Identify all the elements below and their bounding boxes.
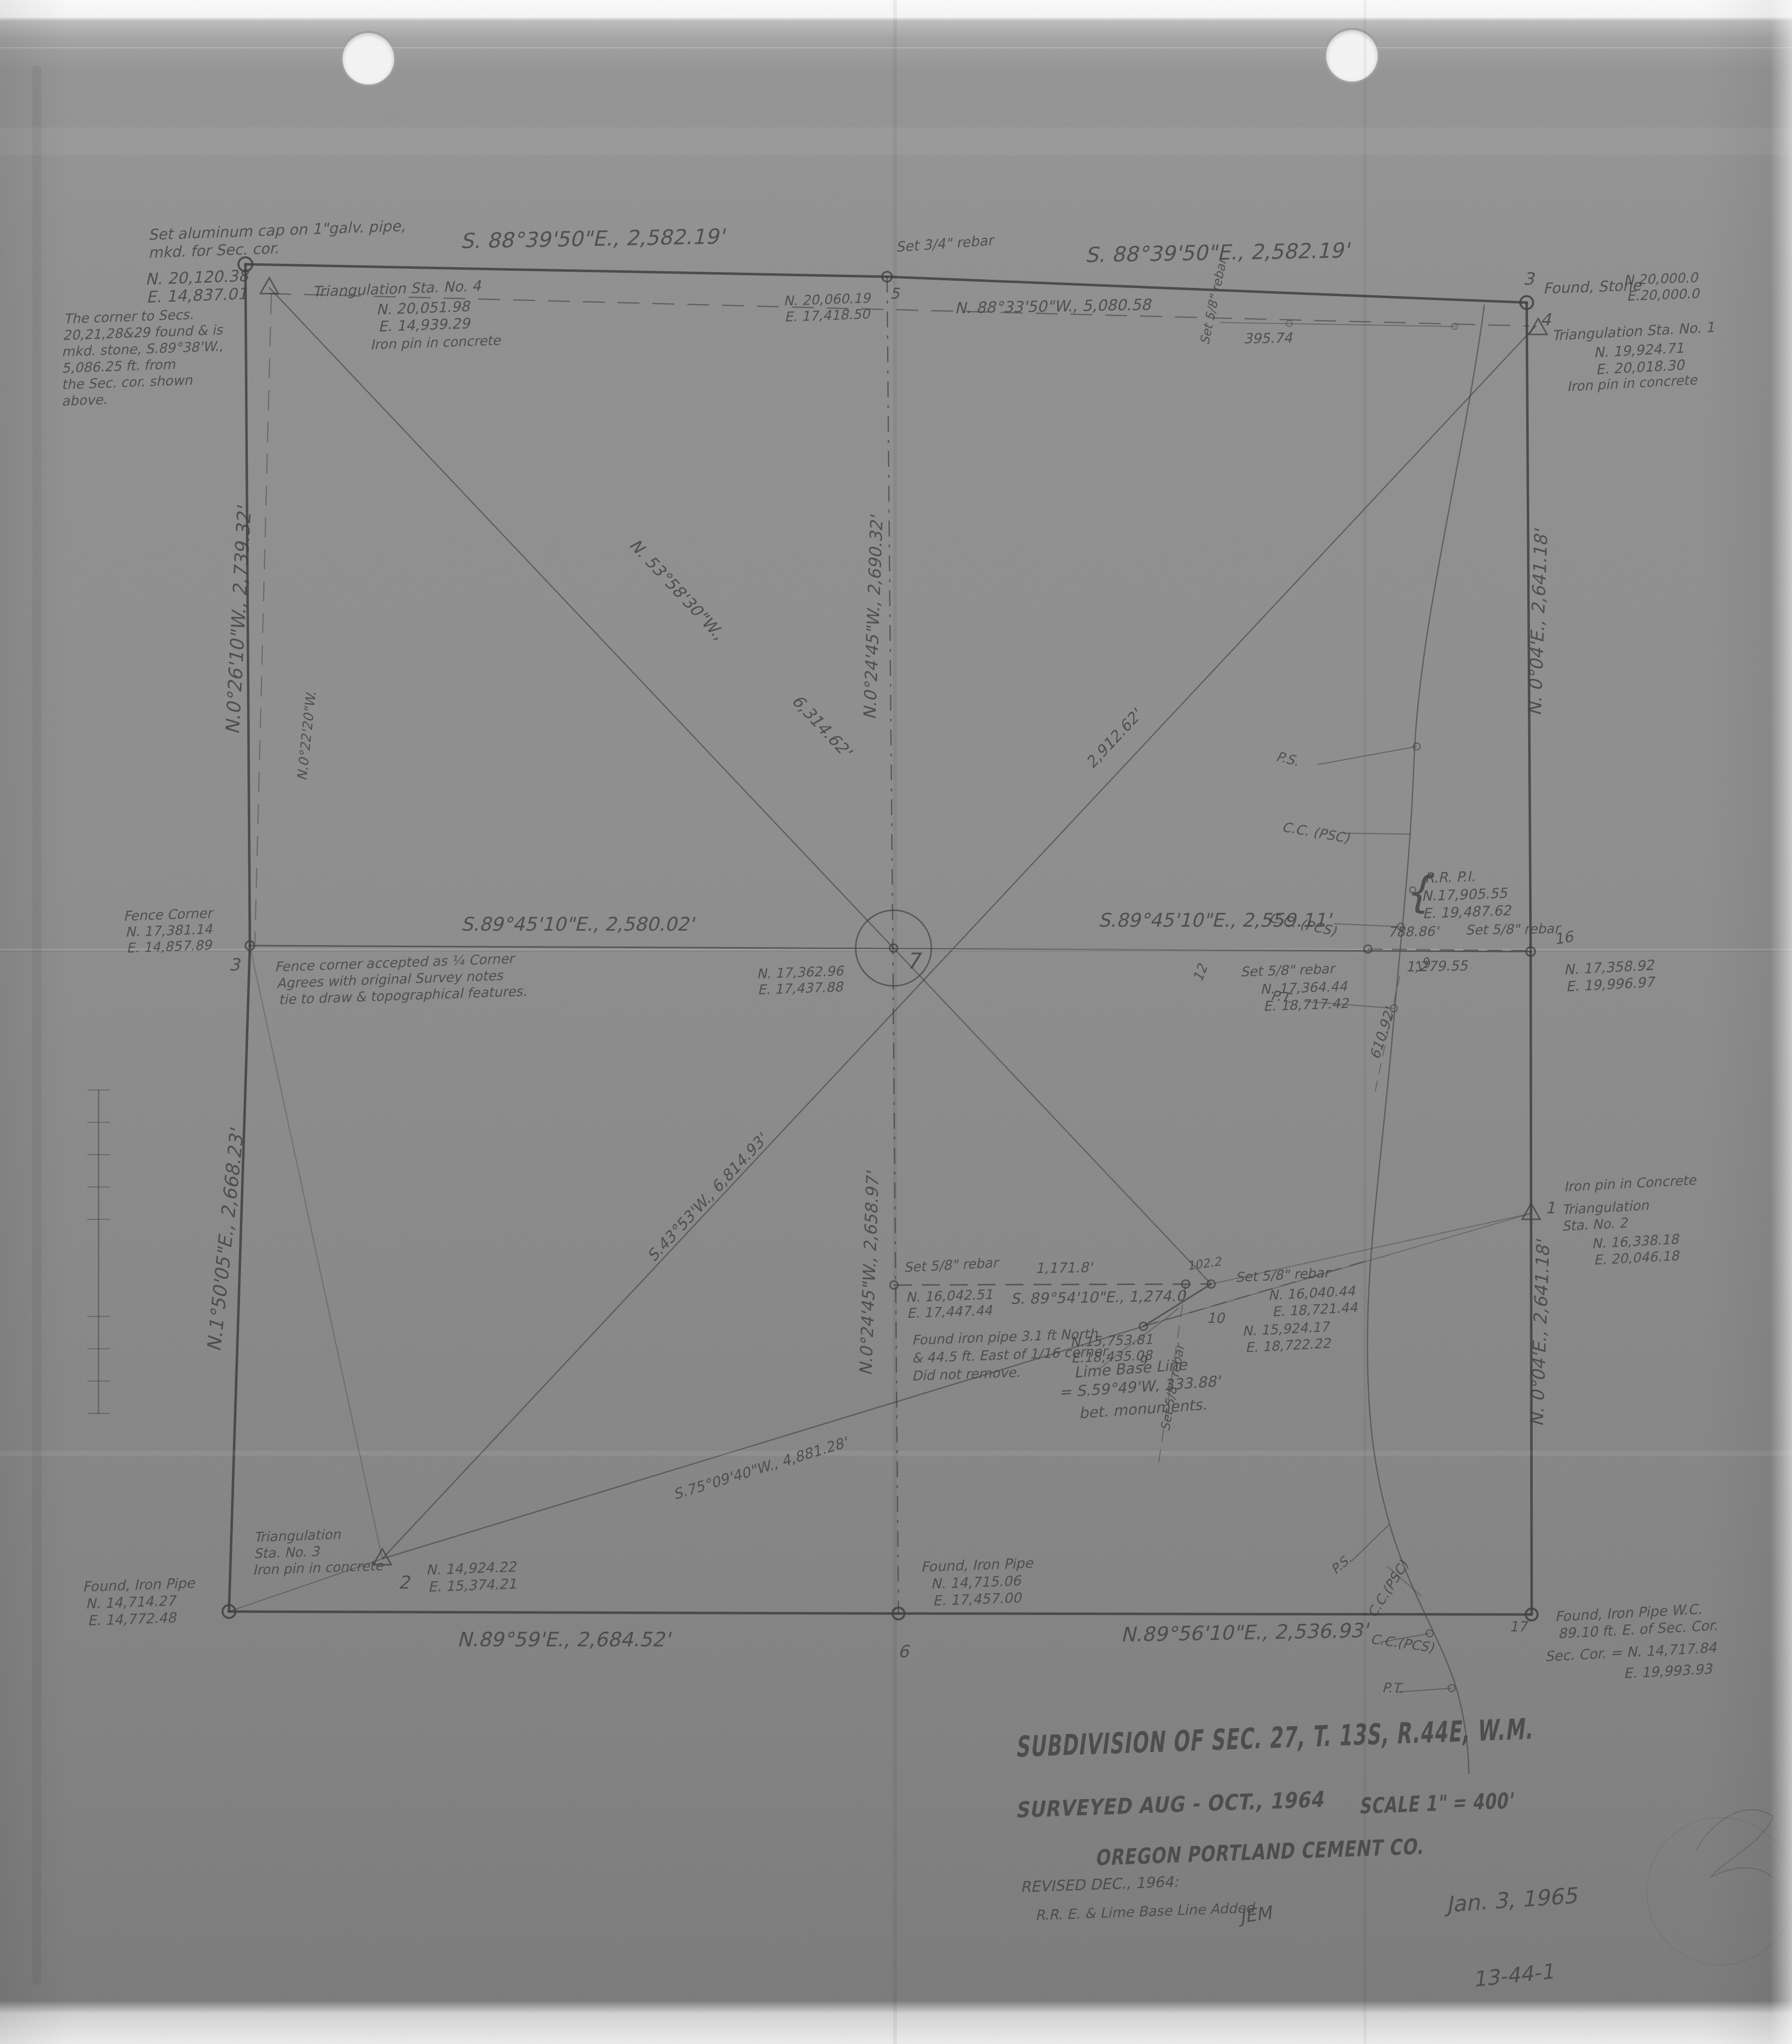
top-bearing-left: S. 88°39'50"E., 2,582.19' bbox=[460, 224, 727, 253]
lc-e1: E. 17,447.44 bbox=[906, 1302, 993, 1321]
fence-corner-n: N. 17,381.14 bbox=[125, 921, 213, 940]
top-rebar-58: Set 5/8" rebar bbox=[1197, 256, 1230, 346]
sw-pipe-1: Found, Iron Pipe bbox=[82, 1575, 196, 1595]
corner-note-6: above. bbox=[61, 392, 107, 409]
cv-bearing-low: N.0°24'45"W., 2,658.97' bbox=[856, 1170, 883, 1376]
pipe-note-3: Did not remove. bbox=[911, 1364, 1020, 1384]
s-pipe-n: N. 14,715.06 bbox=[930, 1573, 1022, 1592]
scale-label: SCALE 1" = 400' bbox=[1358, 1788, 1515, 1819]
drawing-number: 13-44-1 bbox=[1471, 1959, 1555, 1992]
top-tie-bearing: N. 88°33'50"W., 5,080.58 bbox=[954, 296, 1152, 317]
lc-rebar-2: Set 5/8" rebar bbox=[1235, 1265, 1332, 1285]
surveyed: SURVEYED AUG - OCT., 1964 bbox=[1015, 1786, 1325, 1823]
lc-n1: N. 16,042.51 bbox=[905, 1287, 993, 1305]
ne-3: 3 bbox=[1523, 269, 1535, 289]
diag-sw-bearing: S.43°53'W., 6,814.93' bbox=[643, 1129, 772, 1265]
sta3-e: E. 15,374.21 bbox=[428, 1576, 517, 1595]
center-7: 7 bbox=[906, 948, 922, 973]
sw-pipe-n: N. 14,714.27 bbox=[85, 1593, 177, 1612]
sta3-2: 2 bbox=[398, 1572, 411, 1593]
sta3-t1: Triangulation bbox=[253, 1526, 341, 1545]
ne-stone-e: E.20,000.0 bbox=[1626, 286, 1701, 304]
sta1-note: Iron pin in concrete bbox=[1567, 372, 1698, 394]
plat-line bbox=[894, 948, 1211, 1284]
lc-rebar-1: Set 5/8" rebar bbox=[903, 1255, 1001, 1275]
revised-heading: REVISED DEC., 1964: bbox=[1020, 1873, 1179, 1896]
corner-note-4: 5,086.25 ft. from bbox=[61, 356, 176, 376]
company: OREGON PORTLAND CEMENT CO. bbox=[1095, 1833, 1424, 1870]
lc-dim-1171: 1,171.8' bbox=[1035, 1259, 1094, 1277]
surveyor-signature bbox=[1696, 1810, 1773, 1877]
smid-6: 6 bbox=[898, 1641, 910, 1661]
sta1-title: Triangulation Sta. No. 1 bbox=[1552, 319, 1715, 344]
wq-3: 3 bbox=[229, 955, 241, 974]
plat-line bbox=[1344, 833, 1411, 834]
sta3-t3: Iron pin in concrete bbox=[252, 1558, 384, 1578]
top-mid-5: 5 bbox=[890, 285, 900, 302]
survey-plat-canvas: Set aluminum cap on 1"galv. pipe,mkd. fo… bbox=[0, 0, 1792, 2044]
mid-coord-e: E. 17,418.50 bbox=[784, 306, 871, 324]
center-e: E. 17,437.88 bbox=[757, 979, 844, 997]
fence-corner-1: Fence Corner bbox=[123, 905, 215, 924]
q-bearing-west: S.89°45'10"E., 2,580.02' bbox=[461, 913, 696, 935]
rrpi-title: R.R. P.I. bbox=[1424, 868, 1475, 886]
nw-coord-e: E. 14,837.01 bbox=[146, 284, 248, 307]
plat-line bbox=[1318, 747, 1417, 764]
ne-stone-n: N.20,000.0 bbox=[1623, 270, 1699, 288]
sta3-n: N. 14,924.22 bbox=[426, 1559, 517, 1578]
sta2-t2: Sta. No. 2 bbox=[1562, 1215, 1629, 1234]
lc-10: 10 bbox=[1207, 1310, 1226, 1326]
wc-note-3: Sec. Cor. = N. 14,717.84 bbox=[1545, 1639, 1718, 1665]
plat-line bbox=[898, 1614, 1532, 1614]
diag-ne-dist: 2,912.62' bbox=[1082, 705, 1146, 771]
plat-sheet: Set aluminum cap on 1"galv. pipe,mkd. fo… bbox=[0, 0, 1792, 2044]
sta2-e: E. 20,046.18 bbox=[1593, 1248, 1681, 1268]
tie-left-bearing: N.0°22'20"W. bbox=[294, 691, 319, 781]
title: SUBDIVISION OF SEC. 27, T. 13S, R.44E, W… bbox=[1014, 1712, 1533, 1764]
eqr-rebar: Set 5/8" rebar bbox=[1240, 961, 1337, 979]
dim-395: 395.74 bbox=[1243, 329, 1293, 347]
se-17: 17 bbox=[1509, 1618, 1529, 1635]
sta4-e: E. 14,939.29 bbox=[378, 315, 471, 335]
plat-line bbox=[269, 288, 894, 948]
plat-line bbox=[1397, 1688, 1452, 1692]
revised-note: R.R. E. & Lime Base Line Added bbox=[1035, 1900, 1256, 1924]
eq-rebar-dash: Set 5/8" rebar bbox=[1465, 921, 1562, 938]
lime-3: bet. monuments. bbox=[1078, 1396, 1207, 1422]
revision-date: Jan. 3, 1965 bbox=[1443, 1883, 1579, 1918]
lc-e3: E. 18,722.22 bbox=[1245, 1335, 1332, 1355]
cv-bearing-mid: N.0°24'45"W., 2,690.32' bbox=[860, 514, 887, 720]
sta4-title: Triangulation Sta. No. 4 bbox=[312, 277, 482, 300]
eq-dim-788: 788.86' bbox=[1388, 923, 1440, 940]
rrpi-e: E. 19,487.62 bbox=[1422, 902, 1512, 922]
lc-e2: E. 18,721.44 bbox=[1272, 1299, 1358, 1319]
left-bearing-upper: N.0°26'10"W., 2,739.32' bbox=[222, 505, 255, 735]
corner-note-5: the Sec. cor. shown bbox=[61, 372, 193, 392]
plat-line bbox=[250, 946, 382, 1559]
plat-dashed-line bbox=[894, 1284, 1211, 1285]
sta2-note: Iron pin in Concrete bbox=[1564, 1172, 1697, 1194]
sta2-1: 1 bbox=[1545, 1198, 1555, 1217]
top-mid-rebar: Set 3/4" rebar bbox=[895, 232, 996, 255]
plat-line bbox=[229, 1612, 898, 1614]
plat-line bbox=[245, 264, 887, 277]
dim-610: 610.92' bbox=[1366, 1005, 1399, 1062]
rrpi-n: N.17,905.55 bbox=[1421, 885, 1508, 904]
s-pipe-1: Found, Iron Pipe bbox=[920, 1555, 1034, 1575]
plat-line bbox=[1352, 1525, 1389, 1561]
lc-bearing: S. 89°54'10"E., 1,274.0 bbox=[1010, 1287, 1187, 1307]
ps-lower: P.S. bbox=[1328, 1551, 1354, 1577]
bot-bearing-left: N.89°59'E., 2,684.52' bbox=[457, 1628, 672, 1651]
cc-pcs-lower: C.C.(PCS) bbox=[1369, 1631, 1436, 1655]
ne-4: 4 bbox=[1540, 310, 1552, 329]
sta3-t2: Sta. No. 3 bbox=[253, 1543, 321, 1561]
fence-corner-e: E. 14,857.89 bbox=[126, 937, 213, 956]
diag-nw-bearing: N. 53°58'30"W., bbox=[626, 535, 729, 644]
revised-initials: JEM bbox=[1236, 1902, 1274, 1928]
ps-upper: P.S. bbox=[1275, 749, 1301, 769]
plat-dashed-line bbox=[255, 295, 271, 944]
diag-nw-dist: 6,314.62' bbox=[788, 691, 856, 762]
lc-n4: N.15,753.81 bbox=[1070, 1331, 1153, 1350]
monument-circle bbox=[1647, 1818, 1792, 1965]
eq-16: 16 bbox=[1553, 927, 1576, 948]
triangulation-station-icon bbox=[260, 278, 278, 294]
cc-psc-upper: C.C. (PSC) bbox=[1281, 819, 1351, 846]
wc-note-4: E. 19,993.93 bbox=[1623, 1661, 1714, 1682]
lc-dim-102: 102.2 bbox=[1186, 1254, 1223, 1273]
eq-12: 12 bbox=[1190, 962, 1211, 984]
sta2-t1: Triangulation bbox=[1562, 1197, 1650, 1217]
sta4-note: Iron pin in concrete bbox=[370, 332, 501, 352]
center-n: N. 17,362.96 bbox=[756, 963, 845, 981]
bot-bearing-right: N.89°56'10"E., 2,536.93' bbox=[1120, 1619, 1370, 1646]
sw-pipe-e: E. 14,772.48 bbox=[87, 1610, 177, 1629]
s-pipe-e: E. 17,457.00 bbox=[932, 1590, 1022, 1609]
mid-coord-n: N. 20,060.19 bbox=[783, 290, 872, 309]
pt-lower: P.T. bbox=[1382, 1680, 1404, 1696]
